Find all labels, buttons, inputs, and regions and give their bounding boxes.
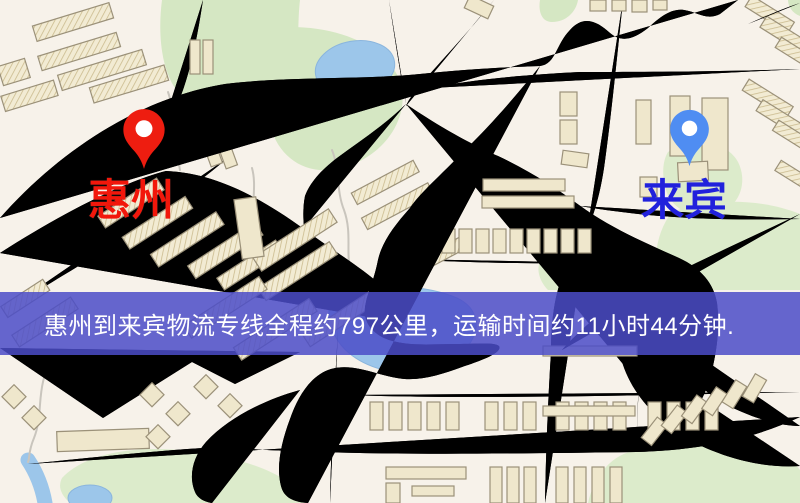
- map-view[interactable]: 惠州到来宾物流专线全程约797公里，运输时间约11小时44分钟. 惠州 来宾: [0, 0, 800, 503]
- destination-city-label: 来宾: [641, 180, 727, 223]
- map-tiles[interactable]: [0, 0, 800, 503]
- route-info-banner: 惠州到来宾物流专线全程约797公里，运输时间约11小时44分钟.: [0, 292, 800, 355]
- route-info-text: 惠州到来宾物流专线全程约797公里，运输时间约11小时44分钟.: [44, 306, 734, 341]
- origin-city-label: 惠州: [88, 180, 174, 223]
